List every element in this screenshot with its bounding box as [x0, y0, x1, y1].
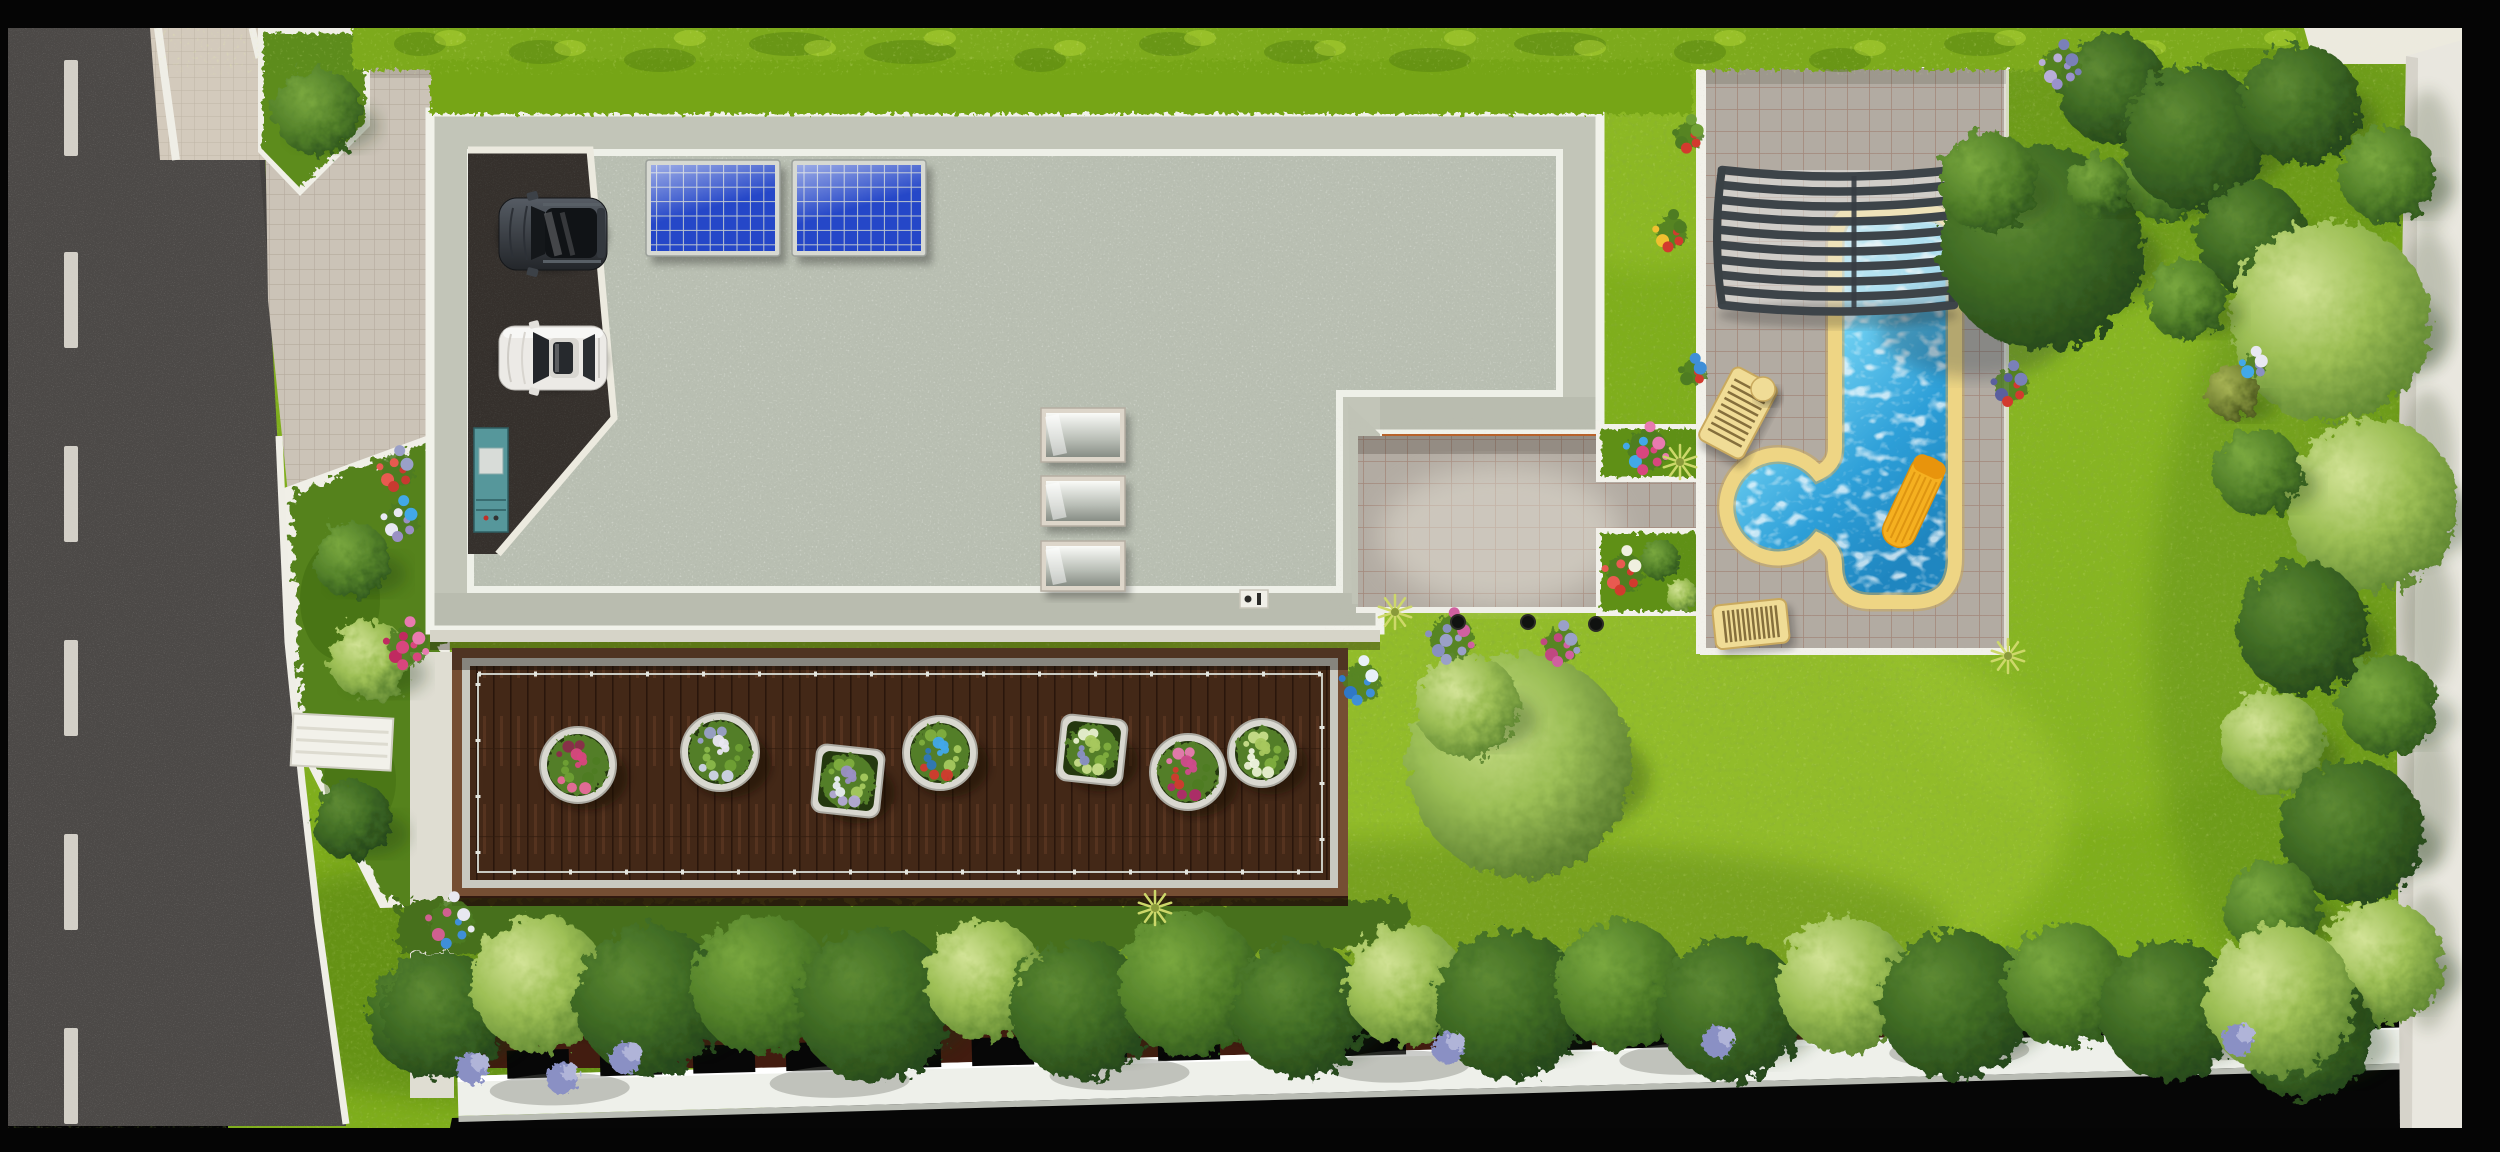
planter-flower	[592, 757, 600, 765]
planter-flower	[1085, 735, 1097, 747]
entry-gate	[291, 713, 394, 770]
planter-flower	[860, 773, 868, 781]
planter-flower	[941, 769, 953, 781]
planter-flower	[724, 760, 736, 772]
planter-flower	[1082, 764, 1092, 774]
planter-flower	[1255, 738, 1267, 750]
wood-deck	[452, 648, 1348, 906]
lane-dash	[64, 834, 78, 930]
planter-flower	[579, 782, 591, 794]
suv-car	[498, 191, 608, 278]
solar-panel	[792, 160, 932, 264]
planter-flower	[1202, 775, 1208, 781]
skylight	[1041, 541, 1130, 598]
frame-bottom	[0, 1128, 2500, 1152]
planter-flower	[557, 776, 565, 784]
planter-flower	[1167, 783, 1175, 791]
planter-flower	[1177, 790, 1187, 800]
planter-flower	[567, 783, 577, 793]
frame-top	[0, 0, 2500, 28]
planter-flower	[829, 768, 835, 774]
white-car	[498, 320, 608, 396]
skylight	[1041, 476, 1130, 533]
frame-right	[2462, 0, 2500, 1152]
planter-flower	[1173, 767, 1179, 773]
lane-dash	[64, 446, 78, 542]
planter-flower	[933, 737, 945, 749]
lane-dash	[64, 252, 78, 348]
planter-flower	[706, 760, 716, 770]
planter-flower	[1189, 789, 1201, 801]
planter-flower	[838, 796, 848, 806]
planter-flower	[698, 738, 704, 744]
planter-flower	[704, 747, 710, 753]
garden-spotlight	[1589, 617, 1603, 631]
planter-flower	[1252, 767, 1262, 777]
skylights	[1041, 408, 1130, 598]
solar-panel	[646, 160, 786, 264]
planter-flower	[556, 751, 562, 757]
planter-flower	[1166, 758, 1172, 764]
planter-flower	[1249, 748, 1255, 754]
planter-flower	[1273, 755, 1279, 761]
planter-flower	[925, 748, 931, 754]
planter-flower	[919, 740, 925, 746]
deck-planter	[1056, 714, 1138, 792]
planter-flower	[734, 755, 740, 761]
planter-flower	[713, 735, 725, 747]
planter-flower	[953, 756, 959, 762]
planter-flower	[1080, 756, 1090, 766]
planter-flower	[841, 766, 853, 778]
planter-flower	[1181, 755, 1193, 767]
planter-flower	[1243, 741, 1249, 747]
planter-flower	[1174, 780, 1184, 790]
planter-flower	[564, 773, 574, 783]
garden-spotlight	[1451, 615, 1465, 629]
planter-flower	[1092, 763, 1104, 775]
planter-flower	[1079, 745, 1085, 751]
garden-spotlight	[1521, 615, 1535, 629]
planter-flower	[848, 795, 860, 807]
planter-flower	[954, 745, 962, 753]
planter-flower	[1250, 759, 1260, 769]
pool-cover	[1717, 168, 1958, 328]
frame-left	[0, 0, 8, 1152]
planter-flower	[929, 770, 939, 780]
planter-flower	[1103, 743, 1111, 751]
planter-flower	[1103, 752, 1109, 758]
planter-flower	[1202, 764, 1210, 772]
utility-cabinet	[474, 428, 508, 532]
planter-flower	[563, 760, 569, 766]
skylight	[1041, 408, 1130, 469]
planter-flower	[592, 768, 598, 774]
aerial-site-plan	[0, 0, 2500, 1152]
sun-lounger	[1712, 598, 1796, 657]
planter-flower	[834, 776, 840, 782]
lane-dash	[64, 1028, 78, 1124]
planter-flower	[699, 764, 707, 772]
lane-dash	[64, 640, 78, 736]
lane-dash	[64, 60, 78, 156]
planter-flower	[860, 783, 866, 789]
planter-flower	[571, 748, 583, 760]
planter-flower	[835, 787, 845, 797]
deck-planter	[811, 744, 895, 824]
planter-flower	[735, 744, 743, 752]
site-plan-canvas	[0, 0, 2500, 1152]
planter-flower	[722, 770, 734, 782]
roof-vent	[1240, 590, 1268, 608]
planter-flower	[927, 760, 937, 770]
planter-flower	[1262, 766, 1274, 778]
planter-flower	[709, 770, 719, 780]
planter-flower	[1073, 738, 1079, 744]
planter-flower	[1273, 746, 1281, 754]
